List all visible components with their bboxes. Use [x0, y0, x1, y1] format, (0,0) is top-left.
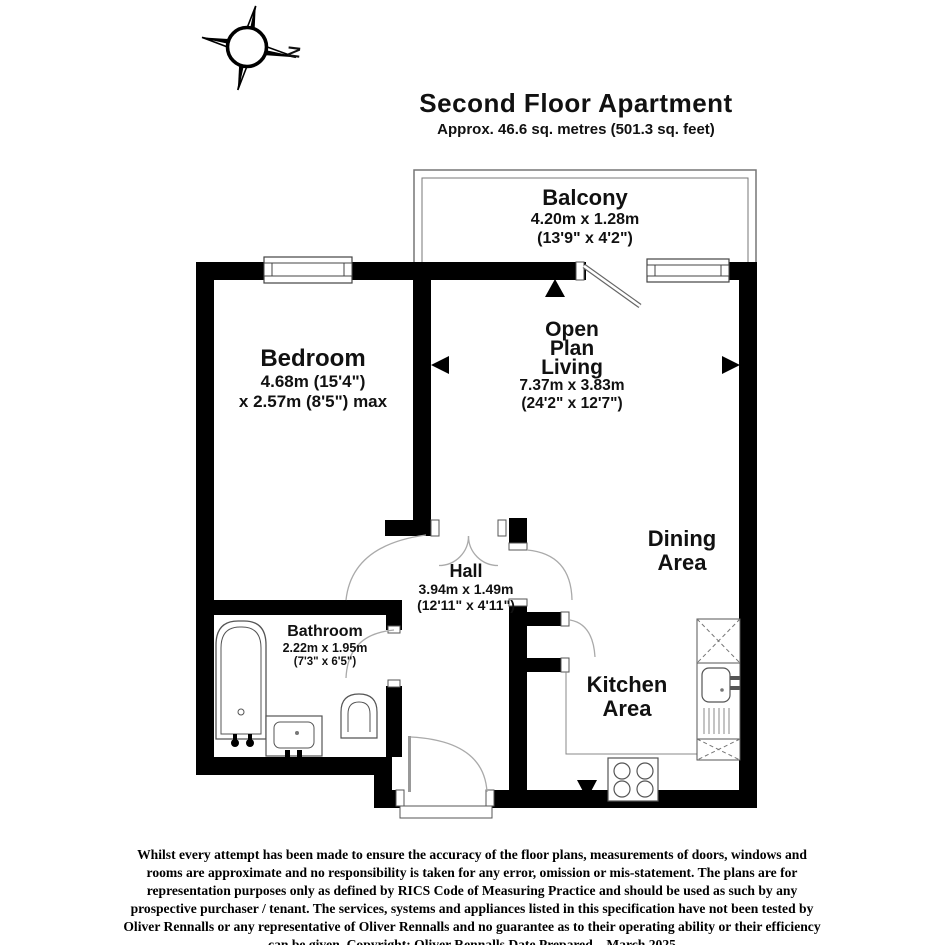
balcony-name: Balcony [531, 186, 640, 210]
entrance-door-leaf [408, 736, 411, 792]
living-dim-metric: 7.37m x 3.83m [519, 377, 624, 395]
bedroom-label: Bedroom 4.68m (15'4") x 2.57m (8'5") max [239, 346, 387, 412]
dining-name-line2: Area [648, 551, 716, 575]
bedroom-name: Bedroom [239, 346, 387, 372]
living-label: Open Plan Living 7.37m x 3.83m (24'2" x … [519, 320, 624, 412]
entrance-door-arc [411, 737, 487, 792]
entrance-threshold [400, 806, 492, 818]
hob [608, 758, 658, 801]
wall-hall-right-lower [509, 602, 527, 790]
hall-label: Hall 3.94m x 1.49m (12'11" x 4'11") [417, 561, 515, 613]
wall-bottom-left [196, 757, 392, 775]
living-window [647, 259, 729, 282]
toilet [341, 694, 377, 738]
hall-name: Hall [417, 561, 515, 581]
wall-bathroom-right-lower [386, 686, 402, 757]
wash-basin [266, 716, 322, 761]
bathroom-dim-imperial: (7'3" x 6'5") [283, 656, 368, 669]
sink-tap [730, 676, 740, 680]
bedroom-dim-line2: x 2.57m (8'5") max [239, 392, 387, 412]
balcony-label: Balcony 4.20m x 1.28m (13'9" x 4'2") [531, 186, 640, 248]
kitchen-name-line1: Kitchen [587, 673, 668, 697]
hall-dim-imperial: (12'11" x 4'11") [417, 597, 515, 613]
bedroom-door-arc [346, 535, 426, 600]
kitchen-label: Kitchen Area [587, 673, 668, 721]
bedroom-dim-line1: 4.68m (15'4") [239, 372, 387, 392]
living-dim-imperial: (24'2" x 12'7") [519, 395, 624, 413]
sink-basin [702, 668, 730, 702]
kitchen-door-arc [570, 620, 595, 657]
arrow-right-icon [722, 356, 740, 374]
kitchen-counter [697, 619, 740, 760]
bathroom-dim-metric: 2.22m x 1.95m [283, 641, 368, 656]
wall-bathroom-top [210, 600, 388, 615]
bedroom-window [264, 257, 352, 283]
wall-hall-stub-left [385, 520, 431, 536]
disclaimer-text: Whilst every attempt has been made to en… [119, 846, 825, 945]
living-door-arc [527, 550, 572, 600]
balcony-dim-metric: 4.20m x 1.28m [531, 210, 640, 229]
wall-right [739, 280, 757, 808]
dining-label: Dining Area [648, 527, 716, 575]
kitchen-name-line2: Area [587, 697, 668, 721]
floor-plan-canvas [0, 0, 945, 945]
living-name-line3: Living [519, 358, 624, 377]
wall-top-left [196, 262, 586, 280]
hall-dim-metric: 3.94m x 1.49m [417, 581, 515, 597]
bathroom-name: Bathroom [283, 623, 368, 641]
wall-bedroom-divider [413, 280, 431, 520]
balcony-dim-imperial: (13'9" x 4'2") [531, 229, 640, 248]
wall-left [196, 280, 214, 775]
dining-name-line1: Dining [648, 527, 716, 551]
arrow-left-icon [431, 356, 449, 374]
floorplan-page: N Second Floor Apartment Approx. 46.6 sq… [0, 0, 945, 945]
arrow-up-icon [545, 279, 565, 297]
wall-top-right-corner [726, 262, 757, 280]
bathtub [216, 621, 266, 747]
sink-tap [730, 686, 740, 690]
bathroom-label: Bathroom 2.22m x 1.95m (7'3" x 6'5") [283, 623, 368, 669]
